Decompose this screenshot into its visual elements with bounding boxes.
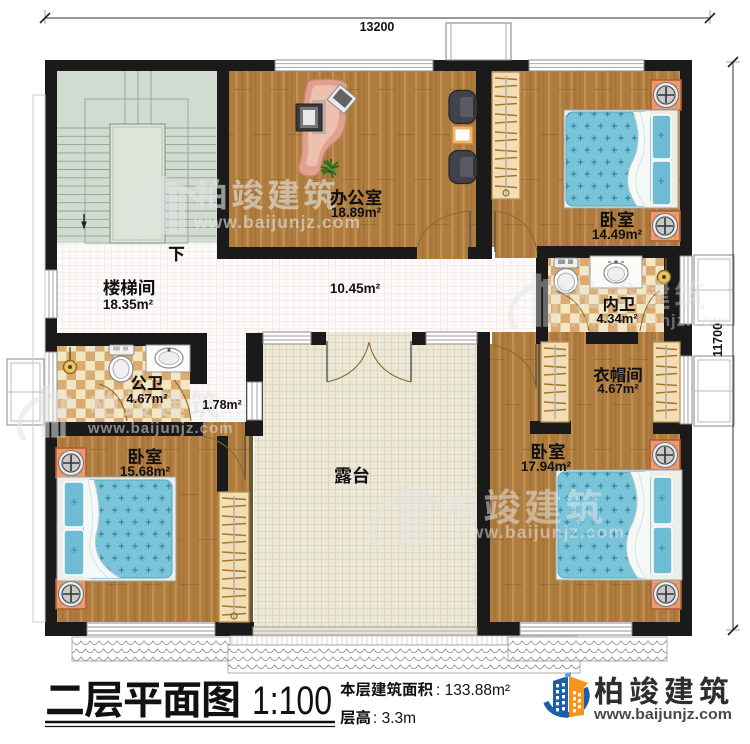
svg-text:www.baijunjz.com: www.baijunjz.com [593, 707, 732, 723]
svg-text:1:100: 1:100 [252, 679, 332, 723]
svg-text:13200: 13200 [360, 20, 395, 34]
svg-text:www.baijunjz.com: www.baijunjz.com [569, 312, 728, 330]
svg-text:14.49m²: 14.49m² [592, 227, 643, 242]
svg-text:15.68m²: 15.68m² [120, 464, 171, 479]
svg-text:4.34m²: 4.34m² [596, 311, 638, 326]
svg-text:www.baijunjz.com: www.baijunjz.com [87, 420, 233, 437]
svg-text:18.89m²: 18.89m² [331, 205, 382, 220]
svg-text:: 3.3m: : 3.3m [373, 710, 416, 727]
svg-text:10.45m²: 10.45m² [330, 281, 381, 296]
svg-text:: 133.88m²: : 133.88m² [436, 682, 510, 699]
svg-text:1.78m²: 1.78m² [202, 398, 242, 412]
svg-text:18.35m²: 18.35m² [103, 297, 154, 312]
svg-text:17.94m²: 17.94m² [521, 459, 572, 474]
svg-text:www.baijunjz.com: www.baijunjz.com [454, 522, 625, 542]
svg-text:4.67m²: 4.67m² [597, 381, 639, 396]
svg-text:4.67m²: 4.67m² [126, 391, 168, 406]
